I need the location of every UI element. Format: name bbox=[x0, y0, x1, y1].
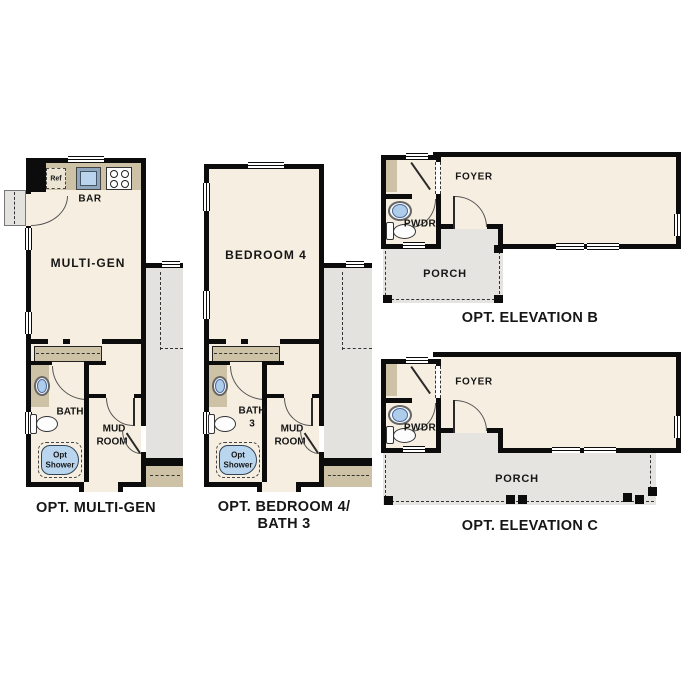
door-leaf bbox=[133, 398, 135, 426]
wall-opening bbox=[226, 339, 241, 344]
caption-opt-bedroom4-line2: BATH 3 bbox=[257, 516, 310, 532]
burner-icon bbox=[110, 180, 118, 188]
pwdr-label: PWDR bbox=[404, 219, 436, 230]
caption-opt-multi-gen: OPT. MULTI-GEN bbox=[36, 500, 156, 516]
wall-opening bbox=[70, 339, 102, 344]
bath-label: BATH bbox=[56, 407, 83, 418]
room-label-multi-gen: MULTI-GEN bbox=[51, 256, 126, 270]
door-leaf bbox=[311, 398, 313, 426]
caption-opt-bedroom4-line1: OPT. BEDROOM 4/ bbox=[218, 499, 351, 515]
porch-post bbox=[506, 495, 515, 504]
dashed-line bbox=[342, 348, 372, 350]
porch-post bbox=[635, 495, 644, 504]
wall-segment bbox=[433, 352, 681, 357]
wall-segment bbox=[118, 482, 123, 492]
wall-segment bbox=[257, 482, 262, 492]
window bbox=[406, 357, 428, 364]
wall-segment bbox=[498, 433, 503, 448]
opt-shower-label-1: Opt bbox=[53, 451, 67, 460]
window bbox=[674, 214, 681, 236]
dashed-line bbox=[328, 475, 369, 477]
wall-segment bbox=[319, 458, 372, 466]
porch-post bbox=[623, 493, 632, 502]
dashed-line bbox=[150, 475, 180, 477]
pwdr-sink-basin bbox=[392, 408, 408, 422]
dashed-line bbox=[385, 251, 387, 301]
porch-label: PORCH bbox=[423, 268, 467, 280]
wall-segment bbox=[89, 394, 106, 398]
wall-segment bbox=[141, 458, 183, 466]
dashed-line bbox=[160, 348, 183, 350]
ref-label: Ref bbox=[50, 176, 61, 183]
wall-segment bbox=[296, 482, 301, 492]
porch-recess bbox=[441, 229, 498, 249]
dashed-line bbox=[160, 272, 162, 350]
adjacent-area bbox=[324, 268, 372, 460]
burner-icon bbox=[110, 170, 118, 178]
window bbox=[248, 162, 284, 169]
dashed-line bbox=[435, 162, 437, 194]
opt-shower-label-2: Shower bbox=[224, 461, 253, 470]
porch-post bbox=[384, 496, 393, 505]
dashed-line bbox=[499, 251, 501, 299]
porch-label: PORCH bbox=[495, 473, 539, 485]
window bbox=[403, 242, 425, 249]
wall-opening bbox=[84, 482, 118, 492]
burner-icon bbox=[121, 170, 129, 178]
wall-segment bbox=[84, 365, 89, 482]
window bbox=[556, 243, 584, 250]
dashed-line bbox=[435, 366, 437, 398]
bath3-label-2: 3 bbox=[249, 419, 255, 430]
window bbox=[674, 416, 681, 438]
burner-icon bbox=[121, 180, 129, 188]
dashed-line bbox=[440, 162, 442, 194]
caption-opt-elevation-b: OPT. ELEVATION B bbox=[462, 310, 598, 326]
window bbox=[25, 228, 32, 250]
window bbox=[68, 156, 104, 163]
caption-opt-elevation-c: OPT. ELEVATION C bbox=[462, 518, 598, 534]
toilet-bowl bbox=[36, 416, 58, 432]
closet-wall bbox=[386, 364, 397, 396]
bath-sink-basin bbox=[215, 379, 225, 393]
bar-sink-basin bbox=[80, 171, 97, 186]
dashed-line bbox=[14, 192, 16, 224]
bath3-label-1: BATH bbox=[238, 406, 265, 417]
wall-segment bbox=[386, 194, 412, 199]
porch-recess bbox=[441, 433, 498, 453]
porch-post bbox=[518, 495, 527, 504]
dashed-line bbox=[36, 353, 100, 355]
room-label-bedroom4: BEDROOM 4 bbox=[225, 248, 307, 262]
window bbox=[203, 183, 210, 211]
porch-post bbox=[494, 295, 503, 303]
opt-shower-label-2: Shower bbox=[46, 461, 75, 470]
wall-opening bbox=[248, 339, 280, 344]
wall-segment bbox=[312, 394, 319, 398]
window bbox=[403, 446, 425, 453]
window bbox=[346, 261, 364, 268]
window bbox=[406, 153, 428, 160]
wall-segment bbox=[134, 394, 141, 398]
adjacent-area bbox=[146, 268, 183, 460]
closet-wall bbox=[386, 160, 397, 192]
dashed-line bbox=[214, 353, 278, 355]
dashed-line bbox=[386, 299, 500, 301]
cooktop bbox=[106, 167, 132, 190]
floorplan-sheet: Ref MULTI-GEN BAR bbox=[0, 0, 687, 687]
wall-segment bbox=[498, 229, 503, 244]
porch-post bbox=[383, 295, 392, 303]
wall-segment bbox=[79, 482, 84, 492]
porch-post bbox=[648, 487, 657, 496]
wall-opening bbox=[48, 339, 63, 344]
wall-segment bbox=[386, 398, 412, 403]
bar-label: BAR bbox=[78, 194, 101, 205]
dashed-line bbox=[342, 272, 344, 350]
bath-sink-basin bbox=[37, 379, 47, 393]
window bbox=[203, 291, 210, 319]
wall-segment bbox=[262, 365, 267, 482]
pwdr-label: PWDR bbox=[404, 423, 436, 434]
opt-shower-label-1: Opt bbox=[231, 451, 245, 460]
wall-segment bbox=[31, 163, 46, 192]
pwdr-sink-basin bbox=[392, 204, 408, 218]
foyer-label: FOYER bbox=[455, 377, 492, 388]
foyer-label: FOYER bbox=[455, 172, 492, 183]
dashed-line bbox=[440, 366, 442, 398]
window bbox=[587, 243, 619, 250]
wall-segment bbox=[433, 152, 681, 157]
window bbox=[25, 312, 32, 334]
wall-segment bbox=[267, 394, 284, 398]
dashed-line bbox=[650, 455, 652, 489]
porch-post bbox=[494, 245, 503, 253]
toilet-bowl bbox=[214, 416, 236, 432]
window bbox=[162, 261, 180, 268]
wall-opening bbox=[262, 482, 296, 492]
